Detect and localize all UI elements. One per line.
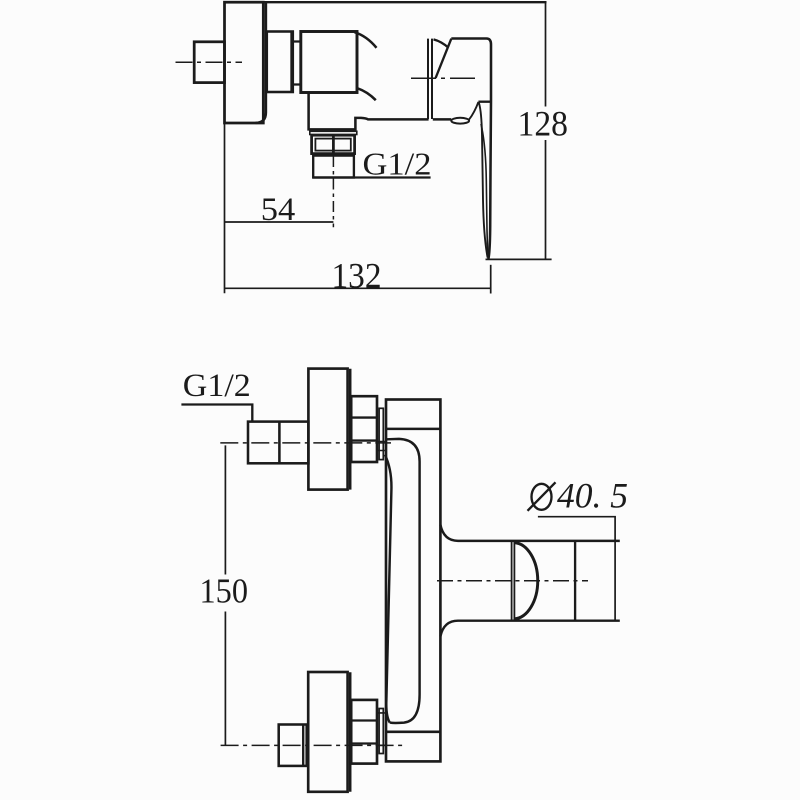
svg-text:G1/2: G1/2 xyxy=(363,146,432,182)
svg-text:54: 54 xyxy=(261,192,296,228)
svg-text:132: 132 xyxy=(332,255,382,295)
svg-text:150: 150 xyxy=(200,572,249,611)
svg-text:128: 128 xyxy=(518,104,569,144)
svg-text:40. 5: 40. 5 xyxy=(557,476,628,516)
svg-text:G1/2: G1/2 xyxy=(183,368,251,404)
